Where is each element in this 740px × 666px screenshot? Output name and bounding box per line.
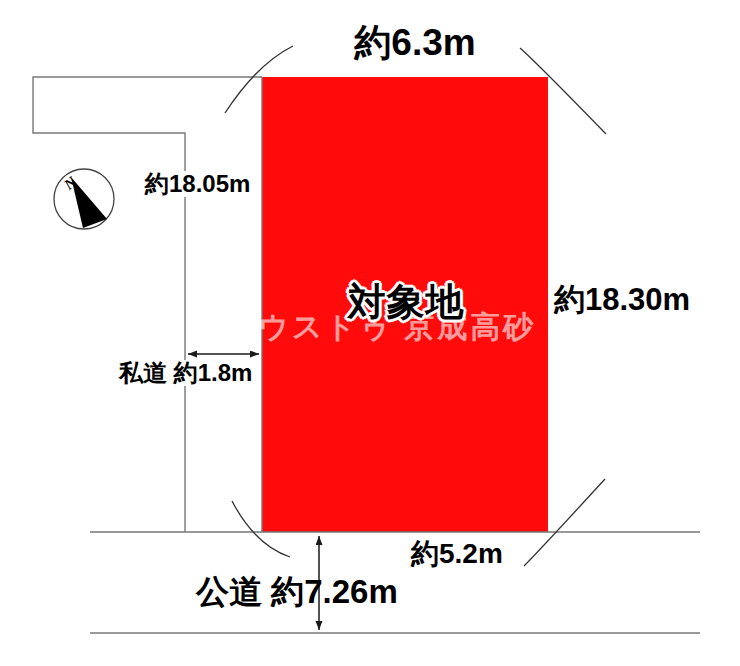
dimension-left-label: 約18.05m [143,171,252,197]
private-road-label: 私道 約1.8m [117,360,254,386]
north-west-boundary-line [33,77,262,532]
dimension-top-label: 約6.3m [300,24,530,61]
public-road-label: 公道 約7.26m [196,575,398,608]
compass-north-icon: N [54,169,114,229]
target-plot-label: 対象地 [318,283,494,321]
dimension-right-label: 約18.30m [554,284,690,315]
dimension-bottom-label: 約5.2m [411,540,503,568]
land-plot-diagram: N 約6.3m 約18.05m 私道 約1.8m 約18.30m 約5.2m 公… [0,0,740,666]
